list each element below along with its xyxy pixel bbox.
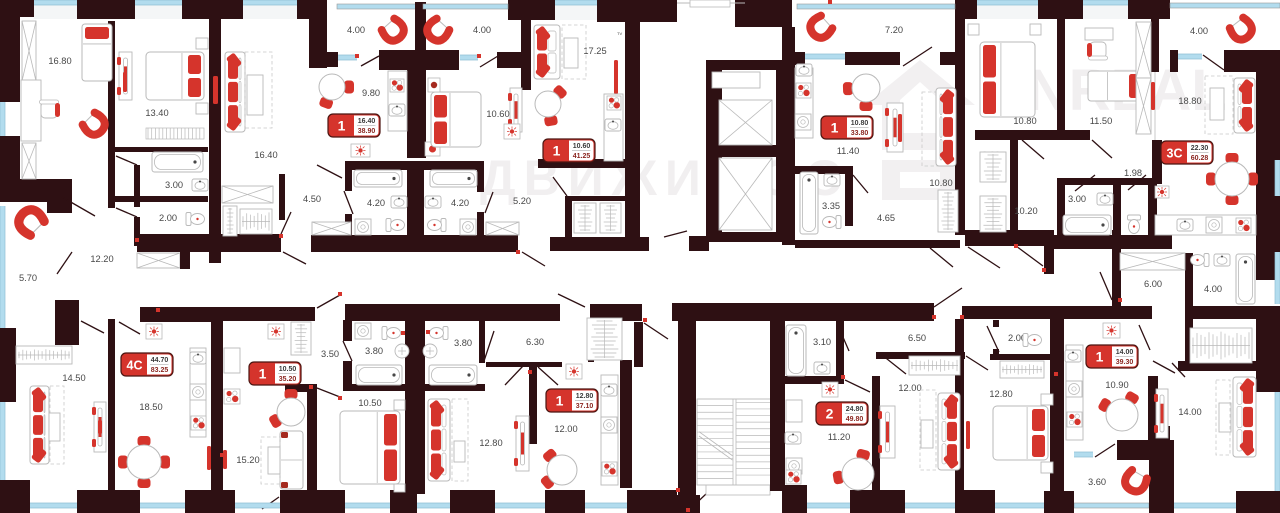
svg-text:3.60: 3.60	[1088, 477, 1106, 487]
svg-text:39.30: 39.30	[1116, 359, 1134, 366]
svg-text:4.50: 4.50	[303, 194, 321, 204]
svg-text:14.00: 14.00	[1116, 349, 1134, 356]
svg-text:TV: TV	[617, 31, 622, 36]
svg-text:6.50: 6.50	[908, 333, 926, 343]
svg-text:15.20: 15.20	[236, 455, 259, 465]
svg-text:2: 2	[826, 405, 834, 421]
svg-text:4.00: 4.00	[473, 25, 491, 35]
svg-text:11.40: 11.40	[837, 146, 860, 156]
svg-text:12.00: 12.00	[898, 383, 921, 393]
svg-text:35.20: 35.20	[279, 376, 297, 383]
svg-text:4.65: 4.65	[877, 213, 895, 223]
svg-text:60.28: 60.28	[1191, 155, 1209, 162]
svg-text:16.80: 16.80	[48, 56, 71, 66]
svg-text:11.20: 11.20	[828, 432, 851, 442]
svg-text:38.90: 38.90	[358, 128, 376, 135]
svg-text:24.80: 24.80	[846, 406, 864, 413]
svg-text:3.35: 3.35	[822, 201, 840, 211]
svg-text:12.80: 12.80	[576, 393, 594, 400]
svg-text:9.80: 9.80	[362, 88, 380, 98]
svg-text:6.00: 6.00	[1144, 279, 1162, 289]
svg-text:11.50: 11.50	[1090, 116, 1113, 126]
svg-text:10.80: 10.80	[851, 120, 869, 127]
svg-text:1.98: 1.98	[1124, 168, 1142, 178]
svg-text:33.80: 33.80	[851, 130, 869, 137]
svg-text:10.90: 10.90	[1105, 380, 1128, 390]
svg-text:12.80: 12.80	[989, 389, 1012, 399]
svg-text:10.80: 10.80	[929, 178, 952, 188]
svg-text:12.20: 12.20	[90, 254, 113, 264]
svg-text:37.10: 37.10	[576, 403, 594, 410]
svg-text:6.30: 6.30	[526, 337, 544, 347]
svg-text:16.40: 16.40	[358, 118, 376, 125]
svg-text:3.50: 3.50	[321, 349, 339, 359]
svg-text:10.20: 10.20	[1014, 206, 1037, 216]
svg-text:3.80: 3.80	[454, 338, 472, 348]
svg-text:4C: 4C	[127, 358, 143, 372]
svg-text:10.50: 10.50	[358, 398, 381, 408]
svg-text:18.80: 18.80	[1178, 96, 1201, 106]
svg-text:1: 1	[259, 365, 267, 381]
svg-text:4.00: 4.00	[1204, 284, 1222, 294]
svg-text:22.30: 22.30	[1191, 145, 1209, 152]
svg-text:5.20: 5.20	[513, 196, 531, 206]
svg-text:3.00: 3.00	[165, 180, 183, 190]
svg-text:5.70: 5.70	[19, 273, 37, 283]
svg-text:10.60: 10.60	[486, 109, 509, 119]
svg-text:12.80: 12.80	[479, 438, 502, 448]
svg-text:2.00: 2.00	[159, 213, 177, 223]
svg-text:1: 1	[556, 392, 564, 408]
svg-text:7.20: 7.20	[885, 25, 903, 35]
svg-text:1: 1	[831, 119, 839, 135]
svg-text:18.50: 18.50	[139, 402, 162, 412]
svg-text:3.00: 3.00	[1068, 194, 1086, 204]
svg-text:17.25: 17.25	[583, 46, 606, 56]
svg-text:1: 1	[338, 117, 346, 133]
svg-text:14.00: 14.00	[1178, 407, 1201, 417]
svg-text:1: 1	[553, 142, 561, 158]
svg-text:3.80: 3.80	[365, 346, 383, 356]
svg-text:4.00: 4.00	[347, 25, 365, 35]
svg-text:10.50: 10.50	[279, 366, 297, 373]
svg-text:14.50: 14.50	[62, 373, 85, 383]
svg-text:44.70: 44.70	[151, 357, 169, 364]
svg-text:83.25: 83.25	[151, 367, 169, 374]
svg-text:49.80: 49.80	[846, 416, 864, 423]
svg-text:4.00: 4.00	[1190, 26, 1208, 36]
svg-text:41.25: 41.25	[573, 153, 591, 160]
svg-text:4.20: 4.20	[451, 198, 469, 208]
svg-text:3C: 3C	[1167, 146, 1183, 160]
svg-text:10.60: 10.60	[573, 143, 591, 150]
svg-text:13.40: 13.40	[145, 108, 168, 118]
svg-text:16.40: 16.40	[254, 150, 277, 160]
svg-text:1: 1	[1096, 348, 1104, 364]
svg-text:12.00: 12.00	[554, 424, 577, 434]
svg-text:4.20: 4.20	[367, 198, 385, 208]
svg-text:3.10: 3.10	[813, 337, 831, 347]
